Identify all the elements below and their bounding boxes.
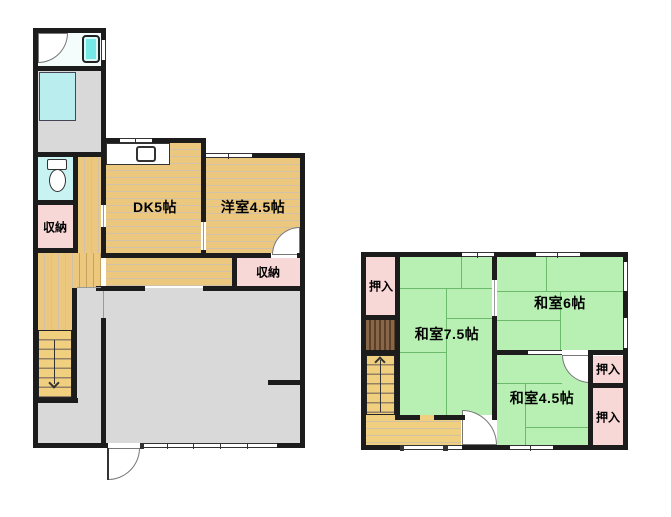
wall-segment <box>33 28 106 33</box>
room-label-closet-right-lower: 押入 <box>596 409 620 426</box>
toilet-bowl-icon <box>49 169 66 192</box>
window <box>140 443 277 448</box>
wall-segment <box>300 153 305 448</box>
wall-segment <box>492 350 528 355</box>
wall-segment <box>33 248 78 253</box>
staircase-1f <box>38 330 72 398</box>
room-label-dk: DK5帖 <box>133 197 177 217</box>
wall-segment <box>297 253 300 258</box>
wall-segment <box>33 398 78 403</box>
floorplan-canvas: DK5帖 洋室4.5帖 収納 収納 <box>0 0 671 517</box>
room-earth-floor <box>77 288 300 443</box>
window <box>400 445 462 450</box>
kitchen-sink-icon <box>136 146 156 162</box>
wall-segment <box>101 138 206 143</box>
hall-strip-1f <box>106 258 232 286</box>
entrance-area <box>38 398 101 443</box>
window <box>101 40 106 60</box>
wall-segment <box>203 286 305 291</box>
wall-segment <box>33 28 38 448</box>
window <box>462 252 494 257</box>
room-label-japanese-75: 和室7.5帖 <box>415 324 479 344</box>
wall-segment <box>395 415 420 420</box>
sliding-door <box>528 350 562 355</box>
wall-segment <box>588 350 593 385</box>
wall-segment <box>590 350 623 355</box>
window <box>536 252 580 257</box>
tatami-line <box>446 318 492 319</box>
washstand-icon <box>39 72 76 121</box>
room-label-western: 洋室4.5帖 <box>221 197 285 217</box>
window <box>206 153 252 158</box>
sliding-door <box>203 222 204 250</box>
window <box>623 262 628 291</box>
wall-segment <box>268 380 300 385</box>
wall-segment <box>73 157 78 253</box>
wall-segment <box>434 415 465 420</box>
wall-segment <box>101 143 106 205</box>
entrance-door-leaf <box>107 448 109 480</box>
window <box>623 318 628 348</box>
wall-segment <box>101 227 106 255</box>
wall-segment <box>33 66 106 71</box>
room-label-storage-right: 収納 <box>256 264 280 281</box>
wall-segment <box>101 318 106 443</box>
window <box>510 445 553 450</box>
wall-segment <box>72 288 77 398</box>
partition-line <box>103 291 104 318</box>
entrance-door-arc <box>108 448 140 480</box>
wall-segment <box>277 443 305 448</box>
stairs-up-arrow-icon <box>380 360 381 412</box>
wall-segment <box>33 443 108 448</box>
stair-approach-1f <box>38 288 72 330</box>
tatami-line <box>400 352 446 353</box>
wall-segment <box>492 257 497 280</box>
wall-segment <box>101 253 271 258</box>
wall-segment <box>395 257 400 415</box>
room-label-closet-top-left: 押入 <box>369 278 393 295</box>
wall-segment <box>33 200 78 205</box>
tatami-line <box>461 257 462 288</box>
tatami-line <box>497 320 560 321</box>
wall-segment <box>492 316 497 420</box>
wall-segment <box>33 152 106 157</box>
wall-segment <box>588 383 623 388</box>
sliding-door <box>494 280 495 316</box>
tatami-line <box>546 257 547 291</box>
wall-segment <box>201 158 206 222</box>
floor-edge <box>77 287 101 288</box>
wall-segment <box>588 388 593 445</box>
tatami-line <box>446 288 447 415</box>
room-label-japanese-6: 和室6帖 <box>534 293 586 313</box>
hallway-lower-1f <box>38 253 101 288</box>
room-label-storage-left: 収納 <box>43 219 67 236</box>
bathtub-icon <box>82 35 100 63</box>
room-label-closet-right-upper: 押入 <box>596 361 620 378</box>
tatami-line <box>497 383 562 384</box>
hatch-area <box>366 320 395 350</box>
window <box>120 138 152 143</box>
sliding-door <box>103 205 104 227</box>
tatami-line <box>525 427 588 428</box>
room-label-japanese-45: 和室4.5帖 <box>510 388 574 408</box>
